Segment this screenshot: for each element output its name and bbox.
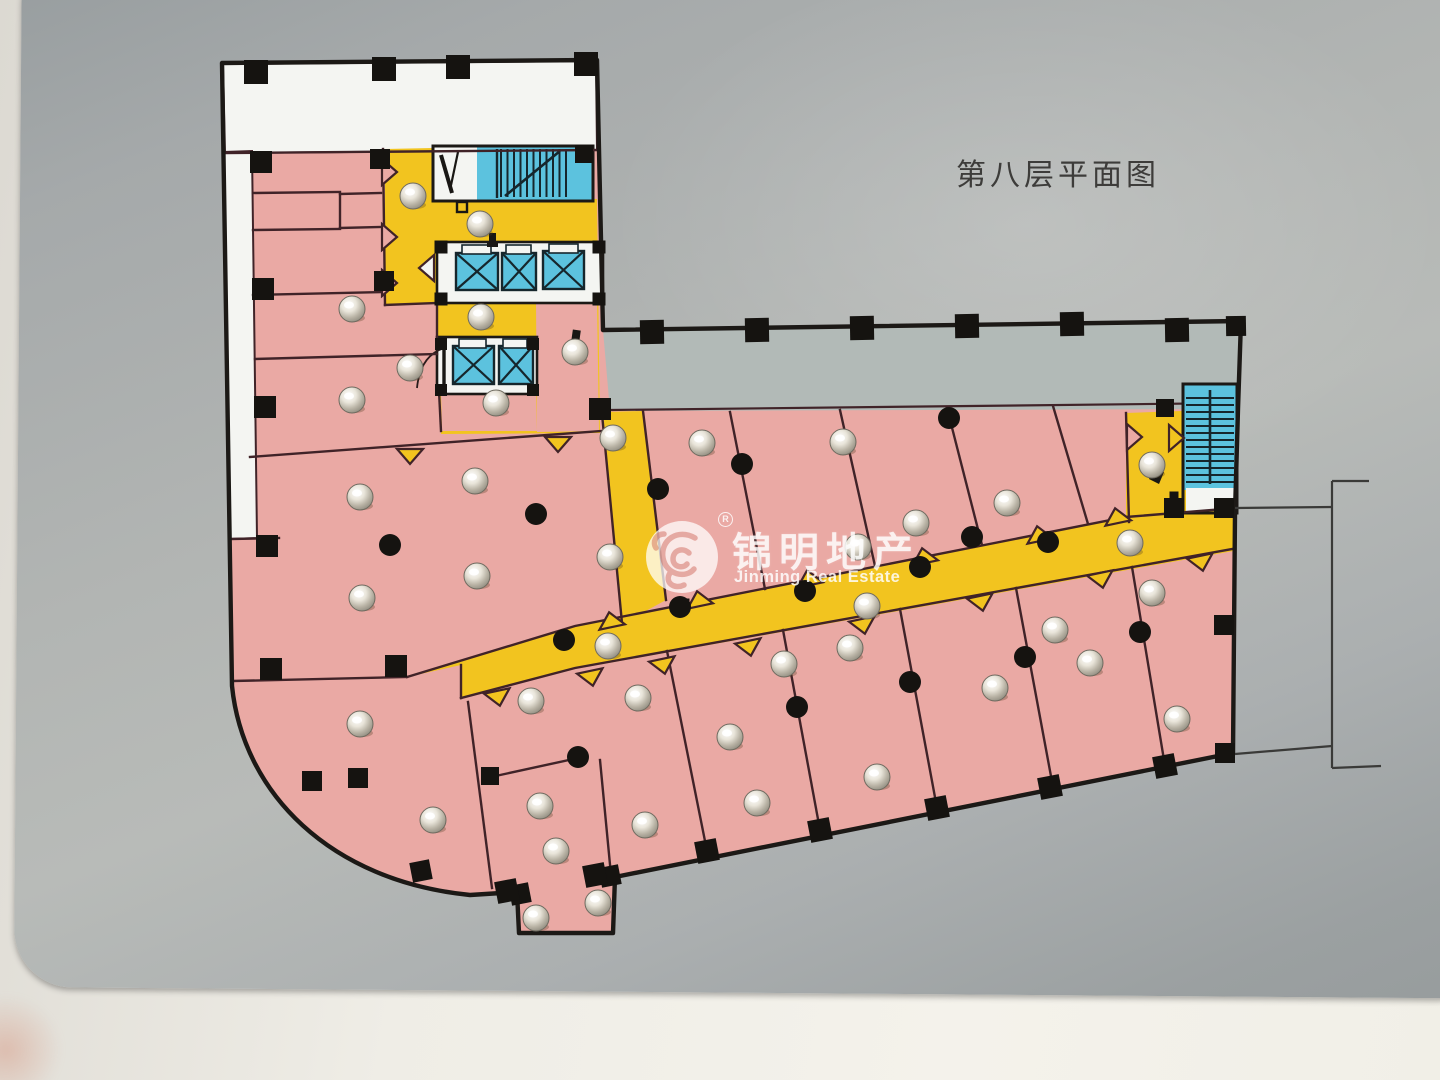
screw-icon [1164,706,1190,732]
screw-icon [339,387,365,413]
screw-icon [468,304,494,330]
screw-icon [600,425,626,451]
registered-mark: R [718,512,733,527]
screw-icon [1139,452,1165,478]
watermark-en: Jinming Real Estate [734,568,900,587]
exterior-canopy-lines [1235,481,1381,768]
screw-icon [339,296,365,322]
watermark: R 锦明地产 Jinming Real Estate [642,506,902,610]
standpipe-icon [487,243,498,247]
screw-icon [349,585,375,611]
screw-icon [1042,617,1068,643]
screw-icon [467,211,493,237]
screw-icon [982,675,1008,701]
screw-icon [632,812,658,838]
screw-icon [1139,580,1165,606]
screw-icon [744,790,770,816]
screw-icon [837,635,863,661]
floor-plan-title: 第八层平面图 [956,150,1160,194]
screw-icon [595,633,621,659]
screw-icon [1077,650,1103,676]
screw-icon [397,355,423,381]
screw-icon [527,793,553,819]
screw-icon [462,468,488,494]
screw-icon [689,430,715,456]
stairwell-east [1183,384,1237,513]
screw-icon [625,685,651,711]
screw-icon [518,688,544,714]
screw-icon [400,183,426,209]
screw-icon [994,490,1020,516]
roof-strip-top [223,61,597,153]
terrace-band [603,321,1241,411]
screw-icon [830,429,856,455]
screw-icon [420,807,446,833]
screw-icon [523,905,549,931]
screw-icon [771,651,797,677]
screw-icon [347,711,373,737]
screw-icon [543,838,569,864]
screw-icon [562,339,588,365]
screw-icon [585,890,611,916]
screw-icon [347,484,373,510]
screw-icon [864,764,890,790]
screw-icon [1117,530,1143,556]
screw-icon [464,563,490,589]
screw-icon [717,724,743,750]
screw-icon [597,544,623,570]
stairwell-north [433,146,593,201]
screw-icon [483,390,509,416]
jinming-logo-icon [642,516,722,596]
photo-floorplan-signboard: 第八层平面图 R 锦明地产 Jinming Real Estate [0,0,1440,1080]
